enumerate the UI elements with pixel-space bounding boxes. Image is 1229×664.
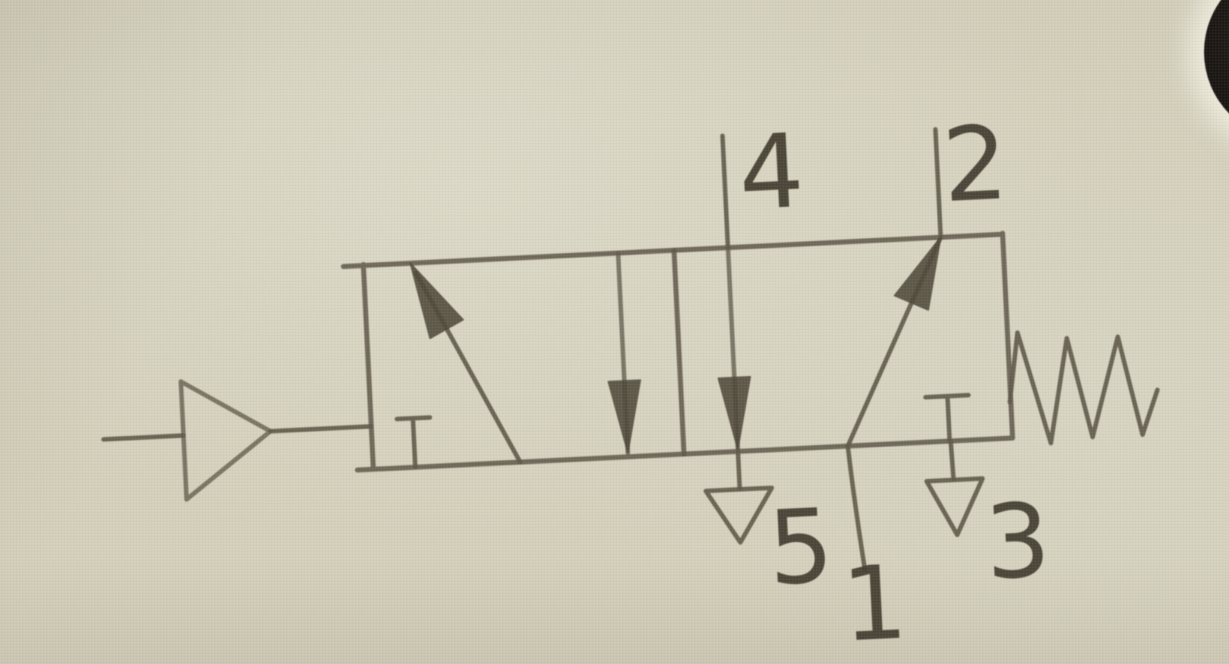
- flow-arrow-1-to-4: [410, 261, 464, 339]
- exhaust-triangle-port-5: [706, 488, 775, 544]
- valve-position-divider: [674, 250, 684, 454]
- port-5-stem: [738, 451, 740, 488]
- valve-schematic-drawing: 4 2 5 1 3: [0, 0, 1229, 664]
- exhaust-triangle-port-3: [927, 479, 986, 537]
- flow-arrow-4-to-5: [718, 377, 753, 450]
- port-2-label: 2: [940, 104, 1011, 226]
- pilot-triangle-icon: [181, 377, 274, 499]
- flow-arrow-1-to-2: [892, 237, 944, 311]
- blocked-port-3-symbol: [925, 395, 970, 442]
- blocked-port-5-symbol: [397, 417, 432, 468]
- paper-photo-background: 4 2 5 1 3: [0, 0, 1229, 664]
- port-2-line: [935, 129, 940, 237]
- port-3-label: 3: [982, 481, 1053, 603]
- pilot-connector-line: [270, 426, 371, 431]
- pilot-line: [104, 436, 184, 440]
- port-4-line: [722, 136, 727, 248]
- port-3-stem: [951, 441, 954, 479]
- return-spring-icon: [1006, 326, 1159, 445]
- flow-arrow-2-to-3: [608, 380, 643, 453]
- port-5-label: 5: [765, 487, 836, 609]
- port-1-label: 1: [839, 543, 910, 664]
- port-4-label: 4: [736, 112, 807, 234]
